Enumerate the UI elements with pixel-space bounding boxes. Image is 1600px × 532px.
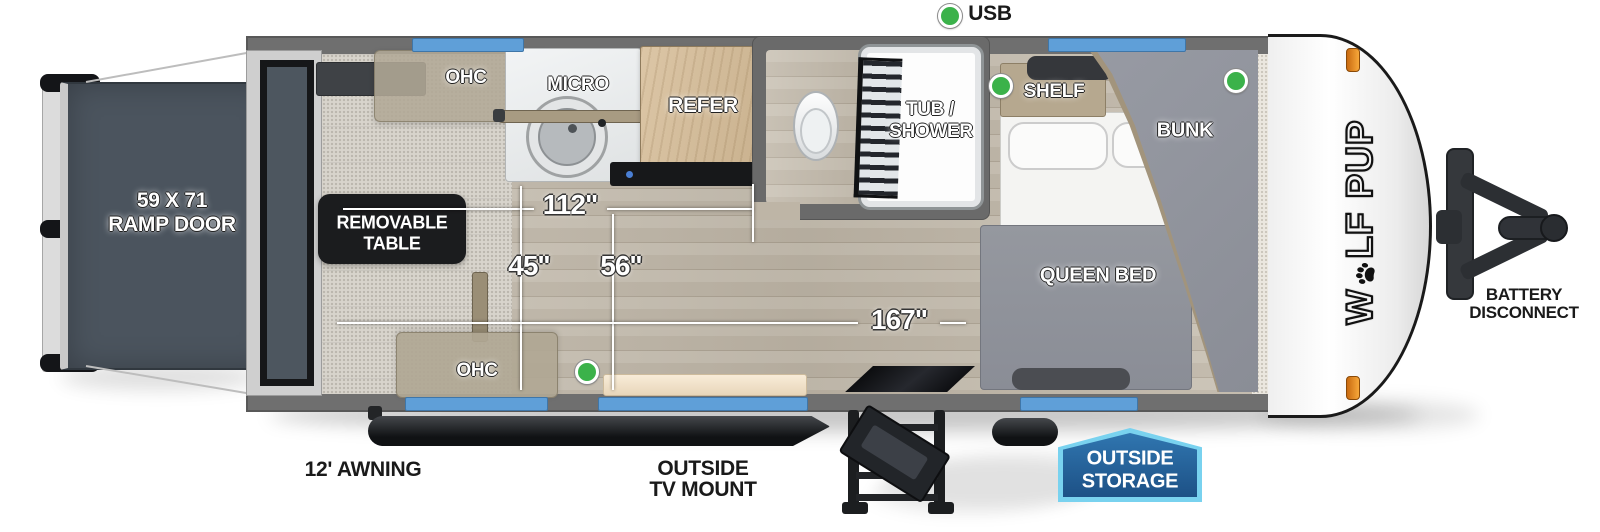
dim-56-label: 56" [600,250,641,282]
dim-tick-112-end [752,184,754,242]
window-bottom-center [598,397,808,411]
ohc-bottom-label: OHC [456,360,497,382]
pillow-left [1008,122,1108,170]
dim-line-112-left [343,208,534,210]
brand-logo: W LF PUP [1334,92,1386,352]
faucet-bar [497,110,657,123]
usb-dot-living [575,360,599,384]
sink-drain [568,124,577,133]
outside-storage-label-1: OUTSIDE [1087,448,1174,471]
usb-legend-label: USB [968,2,1011,26]
battery-disconnect-label-2: DISCONNECT [1469,303,1578,323]
window-bottom-right [1020,397,1138,411]
window-top-left [412,38,524,52]
battery-disconnect-label-1: BATTERY [1486,285,1562,305]
dim-line-56 [612,214,614,390]
toilet-seat [800,108,832,154]
awning-label: 12' AWNING [305,458,422,482]
dim-line-45 [520,186,522,390]
entry-steps-foot-left [842,502,868,514]
faucet-tip-left [493,109,505,122]
dim-line-167-left [337,322,858,324]
removable-table-label-1: REMOVABLE [337,213,448,234]
micro-label: MICRO [547,74,609,96]
outside-storage-label-2: STORAGE [1082,471,1178,494]
dim-45-label: 45" [508,250,549,282]
removable-table-label-2: TABLE [363,234,420,255]
tub-shower-label-2: SHOWER [889,121,973,143]
bathroom-door-gap [754,202,800,220]
faucet-spout [598,119,606,127]
dim-line-167-right [940,322,966,324]
usb-dot-bedroom-wall [989,74,1013,98]
marker-light-bottom [1346,376,1360,400]
usb-dot-legend [938,4,962,28]
bed-footboard [1012,368,1130,390]
dim-line-112-right [607,208,753,210]
marker-light-top [1346,48,1360,72]
rear-door-opening [260,60,314,386]
bunk-label: BUNK [1157,120,1214,143]
dim-112-label: 112" [543,189,597,221]
entry-door-window [860,424,928,480]
shelf-label: SHELF [1024,81,1085,103]
ramp-door-label-1: 59 X 71 [137,189,207,213]
brand-w: W [1339,289,1381,325]
awning-tube [368,416,830,446]
brand-lf: LF [1339,211,1381,258]
refer-label: REFER [668,94,738,118]
window-top-right [1048,38,1186,52]
hitch-stub [1436,210,1462,244]
usb-dot-bunk [1224,69,1248,93]
ohc-top-label: OHC [445,67,486,89]
brand-pup: PUP [1339,119,1381,198]
queen-bed-label: QUEEN BED [1040,265,1156,288]
tv-mount-label-2: TV MOUNT [649,478,756,502]
hitch-coupler [1540,214,1568,242]
window-bottom-left [405,397,548,411]
floorplan-diagram: W LF PUP USB 59 X 71 RAMP [0,0,1600,532]
counter-dark-strip [610,162,764,186]
ramp-door-label-2: RAMP DOOR [108,213,236,237]
tv-soundbar [603,374,807,396]
queen-mattress [980,225,1192,390]
entry-steps-foot-right [928,502,954,514]
awning-tube-right [992,418,1058,446]
tub-shower-label-1: TUB / [906,99,954,121]
dim-167-label: 167" [871,304,927,336]
paw-icon [1347,261,1373,287]
cooktop-knob [626,171,633,178]
